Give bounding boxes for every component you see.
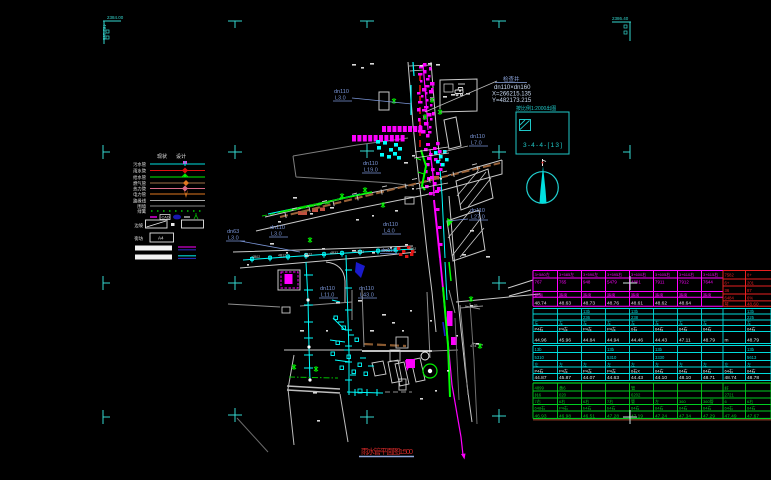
svg-text:dn110: dn110 [334,89,349,95]
svg-text:3+590左: 3+590左 [583,271,598,277]
svg-text:7644: 7644 [703,280,713,285]
svg-text:64右: 64右 [725,367,733,373]
svg-text:13b: 13b [535,347,543,352]
svg-text:路面: 路面 [655,291,663,298]
svg-text:47.19: 47.19 [631,413,643,419]
svg-text:48.76: 48.76 [607,301,619,307]
svg-text:47.24: 47.24 [655,413,667,419]
svg-text:L43.0: L43.0 [360,293,374,299]
svg-text:4B42: 4B42 [356,250,364,254]
svg-text:P4左: P4左 [559,325,568,331]
svg-text:64右: 64右 [703,367,711,373]
svg-text:47.29: 47.29 [703,413,715,419]
svg-text:64右: 64右 [747,325,755,331]
svg-text:6右: 6右 [631,325,637,331]
svg-text:左: 左 [583,320,587,326]
svg-text:b4右: b4右 [583,405,591,411]
svg-text:765: 765 [559,280,567,285]
svg-text:13b: 13b [747,347,755,352]
svg-text:64右: 64右 [703,405,711,411]
svg-text:左: 左 [607,320,611,326]
svg-text:6右: 6右 [559,398,565,404]
svg-text:948: 948 [583,280,591,285]
svg-text:3330: 3330 [655,355,665,360]
svg-text:左: 左 [747,320,751,326]
svg-text:3+605右: 3+605右 [655,271,670,277]
svg-text:48.63: 48.63 [559,301,571,307]
svg-text:48.74: 48.74 [535,301,547,307]
svg-text:64右: 64右 [631,405,639,411]
svg-text:左: 左 [655,361,659,367]
svg-text:dn110: dn110 [470,208,485,214]
svg-text:边坡: 边坡 [134,222,143,229]
svg-text:7右: 7右 [607,398,613,404]
svg-text:45.87: 45.87 [559,375,571,381]
svg-text:45.96: 45.96 [559,337,571,343]
svg-text:左: 左 [703,320,707,326]
svg-text:左: 左 [583,361,587,367]
svg-text:电力管: 电力管 [133,191,147,198]
svg-text:P4右: P4右 [559,405,568,411]
svg-text:左: 左 [747,361,751,367]
svg-text:左: 左 [679,361,683,367]
svg-text:路面: 路面 [583,291,591,298]
svg-text:648右: 648右 [535,405,546,411]
svg-text:13b: 13b [607,347,615,352]
svg-text:48.64: 48.64 [679,301,691,307]
svg-text:Y=482173.215: Y=482173.215 [492,98,532,104]
svg-text:左: 左 [655,320,659,326]
svg-text:5479: 5479 [607,280,617,285]
svg-text:左: 左 [559,361,563,367]
svg-text:污水管: 污水管 [133,161,147,168]
svg-text:48.71: 48.71 [703,375,715,381]
svg-text:48.78: 48.78 [747,375,759,381]
svg-text:7582: 7582 [725,273,735,278]
svg-text:13b: 13b [747,309,755,314]
svg-text:238: 238 [631,315,639,320]
svg-text:路面: 路面 [631,291,639,298]
svg-text:dn110: dn110 [270,225,285,231]
svg-text:48.61: 48.61 [631,301,643,307]
svg-text:左: 左 [725,361,729,367]
svg-text:L7.0: L7.0 [471,141,482,147]
svg-text:64右: 64右 [655,367,663,373]
svg-text:767: 767 [535,280,543,285]
svg-text:左: 左 [655,398,659,404]
svg-text:47.67: 47.67 [747,413,759,419]
svg-text:路面: 路面 [703,291,711,298]
svg-text:5310: 5310 [535,355,545,360]
svg-text:3+600右: 3+600右 [631,271,646,277]
svg-text:64右: 64右 [747,367,755,373]
svg-text:路面: 路面 [607,291,615,298]
svg-text:3+610右: 3+610右 [679,271,694,277]
svg-text:现状: 现状 [157,153,167,160]
svg-text:X=266215.135: X=266215.135 [492,92,532,98]
svg-text:47.28: 47.28 [607,413,619,419]
svg-text:47.11: 47.11 [679,337,691,343]
svg-text:6右: 6右 [583,398,589,404]
svg-text:给水管: 给水管 [133,174,147,181]
svg-text:雨水管平面图1:500: 雨水管平面图1:500 [361,446,413,456]
svg-text:48.62: 48.62 [655,301,667,307]
svg-text:360: 360 [679,399,686,404]
svg-text:48.10: 48.10 [679,375,691,381]
svg-text:路面: 路面 [535,291,543,298]
svg-text:按比例1:2000出图: 按比例1:2000出图 [516,105,556,112]
svg-text:44.43: 44.43 [655,337,667,343]
svg-text:13b: 13b [631,309,639,314]
svg-text:dn110: dn110 [363,161,378,167]
svg-text:7右: 7右 [535,398,541,404]
svg-text:dn110: dn110 [320,286,335,292]
svg-text:6+: 6+ [725,281,730,286]
svg-text:左: 左 [607,361,611,367]
svg-text:A4: A4 [158,236,164,241]
svg-text:44.87: 44.87 [535,375,547,381]
svg-text:020: 020 [559,393,567,398]
svg-text:雨水管: 雨水管 [133,167,147,174]
svg-text:2721: 2721 [725,393,735,398]
svg-text:360管: 360管 [703,398,714,404]
svg-text:48.60: 48.60 [747,302,759,307]
svg-text:13b: 13b [655,347,663,352]
svg-text:dn110: dn110 [359,286,374,292]
svg-text:13b: 13b [583,309,591,314]
svg-text:2386.40: 2386.40 [612,16,629,21]
svg-text:左: 左 [703,361,707,367]
svg-text:L4.0: L4.0 [384,229,395,235]
svg-text:5310: 5310 [607,355,617,360]
svg-text:左: 左 [679,320,683,326]
svg-text:3+595右: 3+595右 [607,271,622,277]
svg-text:201: 201 [747,281,755,286]
svg-text:管: 管 [631,398,635,404]
svg-text:64右: 64右 [655,325,663,331]
svg-text:48.73: 48.73 [583,301,595,307]
svg-text:6%: 6% [747,296,753,301]
svg-text:474: 474 [470,344,476,348]
svg-text:街坊: 街坊 [134,235,143,242]
svg-text:好: 好 [725,385,729,392]
svg-text:左: 左 [535,320,539,326]
svg-text:P4右: P4右 [535,325,544,331]
svg-text:64右: 64右 [655,405,663,411]
svg-text:绿篱: 绿篱 [137,208,146,215]
svg-text:7911: 7911 [655,280,665,285]
svg-text:4B12: 4B12 [278,254,286,258]
svg-text:检查井: 检查井 [503,75,520,83]
svg-text:P4左: P4左 [583,325,592,331]
svg-text:47.49: 47.49 [725,413,737,419]
svg-text:64右: 64右 [725,405,733,411]
svg-text:m: m [725,338,729,343]
svg-text:64右: 64右 [747,405,755,411]
svg-text:64右: 64右 [679,405,687,411]
svg-text:L11.0: L11.0 [321,293,334,299]
svg-text:路面: 路面 [679,291,687,298]
svg-text:64右: 64右 [679,325,687,331]
svg-text:44.07: 44.07 [583,375,595,381]
svg-text:dn110: dn110 [381,248,396,254]
svg-text:P4左: P4左 [559,367,568,373]
svg-text:4B22: 4B22 [304,252,312,256]
svg-text:P4左: P4左 [607,367,616,373]
svg-text:路面: 路面 [559,291,567,298]
svg-text:64右: 64右 [679,367,687,373]
svg-text:44.63: 44.63 [607,375,619,381]
svg-text:L27.0: L27.0 [471,215,485,221]
svg-text:4B02: 4B02 [252,255,260,259]
svg-text:46.98: 46.98 [559,413,571,419]
svg-text:4899: 4899 [535,386,545,391]
svg-text:L3.0: L3.0 [335,96,346,102]
svg-text:44.46: 44.46 [631,337,643,343]
svg-text:4B: 4B [473,304,478,308]
svg-text:P4左: P4左 [583,367,592,373]
svg-text:左: 左 [559,320,563,326]
svg-text:黄6: 黄6 [559,385,566,392]
svg-text:44.94: 44.94 [607,337,619,343]
svg-text:L3.0: L3.0 [228,236,239,242]
svg-text:4B32: 4B32 [330,251,338,255]
svg-text:44.84: 44.84 [583,337,595,343]
svg-text:7912: 7912 [679,280,689,285]
svg-text:48.79: 48.79 [747,337,759,343]
svg-text:64右: 64右 [703,325,711,331]
svg-text:管: 管 [631,385,635,392]
svg-text:dn63: dn63 [227,229,239,235]
svg-text:左: 左 [535,361,539,367]
svg-text:6202: 6202 [631,393,641,398]
svg-text:4B62: 4B62 [408,247,416,251]
svg-text:3+580左: 3+580左 [535,271,550,277]
svg-text:47.34: 47.34 [679,413,691,419]
svg-text:P4左: P4左 [607,325,616,331]
svg-text:44.96: 44.96 [535,337,547,343]
svg-text:左: 左 [631,361,635,367]
svg-text:46.93: 46.93 [535,413,547,419]
svg-text:48.74: 48.74 [725,375,737,381]
svg-text:6右X: 6右X [631,367,640,373]
svg-text:8+: 8+ [747,273,752,278]
svg-text:44.43: 44.43 [631,375,643,381]
svg-text:5613: 5613 [747,355,757,360]
svg-text:3+585左: 3+585左 [559,271,574,277]
svg-text:P4右: P4右 [535,367,544,373]
svg-text:4891: 4891 [631,280,641,285]
svg-text:左: 左 [631,320,635,326]
svg-text:36: 36 [725,288,730,293]
svg-text:L3.0: L3.0 [271,232,282,238]
svg-text:dn110×dn160: dn110×dn160 [494,85,531,91]
svg-text:87: 87 [747,288,752,293]
svg-text:44.10: 44.10 [655,375,667,381]
svg-text:dn110: dn110 [383,222,398,228]
svg-text:设计: 设计 [176,153,186,160]
svg-text:共6: 共6 [535,392,542,399]
svg-text:L19.0: L19.0 [364,168,378,174]
svg-text:48.79: 48.79 [703,337,715,343]
svg-text:3-4-4-[13]: 3-4-4-[13] [523,142,562,149]
svg-text:236: 236 [583,315,591,320]
svg-text:6484: 6484 [725,296,735,301]
svg-text:CAD: CAD [162,216,170,220]
svg-text:225: 225 [747,315,755,320]
svg-text:2384.00: 2384.00 [107,15,124,20]
svg-text:3+615右: 3+615右 [703,271,718,277]
svg-text:6右: 6右 [747,398,753,404]
svg-text:b4右: b4右 [607,405,615,411]
svg-text:46.51: 46.51 [583,413,595,419]
svg-text:dn110: dn110 [470,134,485,140]
